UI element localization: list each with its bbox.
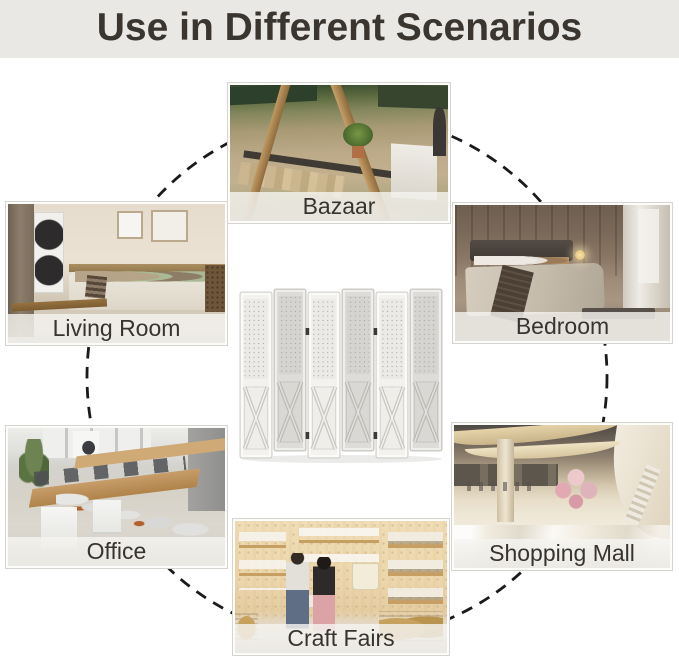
photo-detail (34, 212, 64, 293)
photo-detail (352, 146, 364, 158)
title-bar: Use in Different Scenarios (0, 0, 679, 58)
photo-detail (378, 85, 448, 109)
photo-detail (286, 553, 309, 635)
photo-detail (117, 211, 143, 239)
photo-detail (299, 528, 380, 562)
room-divider-illustration (238, 286, 446, 466)
divider-panel (410, 289, 442, 451)
divider-panel (240, 292, 272, 458)
bazaar-caption-label: Bazaar (230, 192, 448, 221)
photo-detail (343, 123, 373, 147)
photo-detail (85, 275, 107, 299)
scenario-card-bazaar: Bazaar (228, 83, 450, 223)
photo-detail (433, 107, 446, 156)
office-caption-label: Office (8, 537, 225, 566)
shopping-mall-caption-label: Shopping Mall (454, 539, 670, 568)
divider-panel (342, 289, 374, 451)
page-title: Use in Different Scenarios (0, 0, 679, 58)
craft-fairs-caption-label: Craft Fairs (235, 624, 447, 653)
photo-detail (230, 85, 317, 105)
photo-detail (388, 532, 443, 606)
bedroom-caption-label: Bedroom (455, 312, 670, 341)
product-room-divider (238, 286, 446, 466)
scenario-card-craft-fairs: Craft Fairs (233, 519, 449, 655)
photo-detail (467, 482, 532, 491)
photo-detail (638, 209, 660, 282)
photo-detail (93, 500, 121, 535)
photo-detail (239, 532, 286, 590)
photo-detail (352, 563, 380, 589)
scenario-diagram: Use in Different Scenarios Bazaar (0, 0, 679, 664)
scenario-card-living-room: Living Room (6, 202, 227, 345)
scenario-card-bedroom: Bedroom (453, 203, 672, 343)
photo-detail (73, 431, 99, 459)
scenario-card-office: Office (6, 426, 227, 568)
photo-detail (497, 439, 514, 522)
photo-detail (547, 468, 605, 511)
divider-panel (376, 292, 408, 458)
divider-panel (274, 289, 306, 451)
divider-panel (308, 292, 340, 458)
living-room-caption-label: Living Room (8, 314, 225, 343)
photo-detail (56, 483, 217, 541)
photo-detail (151, 210, 188, 242)
photo-detail (205, 265, 225, 312)
scenario-card-shopping-mall: Shopping Mall (452, 423, 672, 570)
